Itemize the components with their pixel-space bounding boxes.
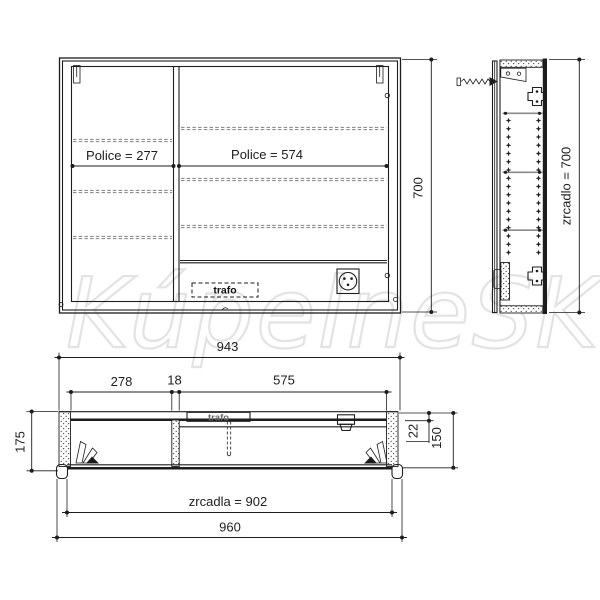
dim-police-left: Police = 277 xyxy=(71,148,176,168)
hanging-bracket-icon-left xyxy=(74,66,81,84)
trafo-label-plan: trafo xyxy=(208,412,229,423)
technical-drawing: KúpelneSK xyxy=(0,0,600,600)
door-hinge-leaves-icon-right xyxy=(364,442,387,464)
hanging-bracket-icon-right xyxy=(377,66,384,84)
dim-plan-mirror-width: zrcadla = 902 xyxy=(62,479,397,517)
bottom-panel-section xyxy=(500,306,543,313)
dim-label-22: 22 xyxy=(406,424,421,438)
power-outlet-plan-icon xyxy=(338,415,355,431)
dim-label-zrcadlo-700: zrcadlo = 700 xyxy=(559,147,574,225)
hanging-bracket-icon-side xyxy=(501,68,526,81)
dim-label-175: 175 xyxy=(13,431,28,453)
dim-plan-inner: 278 18 575 xyxy=(67,373,392,411)
door-profile-block xyxy=(501,263,510,301)
trafo-label-front: trafo xyxy=(213,285,236,297)
dim-label-18: 18 xyxy=(167,373,181,388)
dim-label-278: 278 xyxy=(111,374,133,389)
wall-screw-icon xyxy=(457,77,498,86)
divider-section xyxy=(172,420,179,467)
dim-label-150: 150 xyxy=(429,427,444,449)
dim-label-zrcadla-902: zrcadla = 902 xyxy=(189,494,267,509)
door-hinge-leaves-icon-left xyxy=(76,442,99,464)
top-panel-section xyxy=(500,60,543,67)
shelves-right xyxy=(181,127,387,227)
dim-police-right: Police = 574 xyxy=(177,147,389,168)
dim-plan-960: 960 xyxy=(52,479,407,542)
right-side-panel xyxy=(387,412,399,467)
drawing-page: KúpelneSK xyxy=(0,0,600,600)
dim-plan-175: 175 xyxy=(13,410,59,473)
dim-label-700: 700 xyxy=(411,177,426,199)
dim-label-960: 960 xyxy=(219,520,241,535)
dim-label-943: 943 xyxy=(217,339,239,354)
shelf-pin-holes xyxy=(506,118,542,256)
trafo-box-plan: trafo xyxy=(187,412,250,423)
dim-label-police-574: Police = 574 xyxy=(231,147,303,162)
dim-label-575: 575 xyxy=(273,373,295,388)
left-side-panel xyxy=(59,412,71,467)
dim-label-police-277: Police = 277 xyxy=(86,148,158,163)
